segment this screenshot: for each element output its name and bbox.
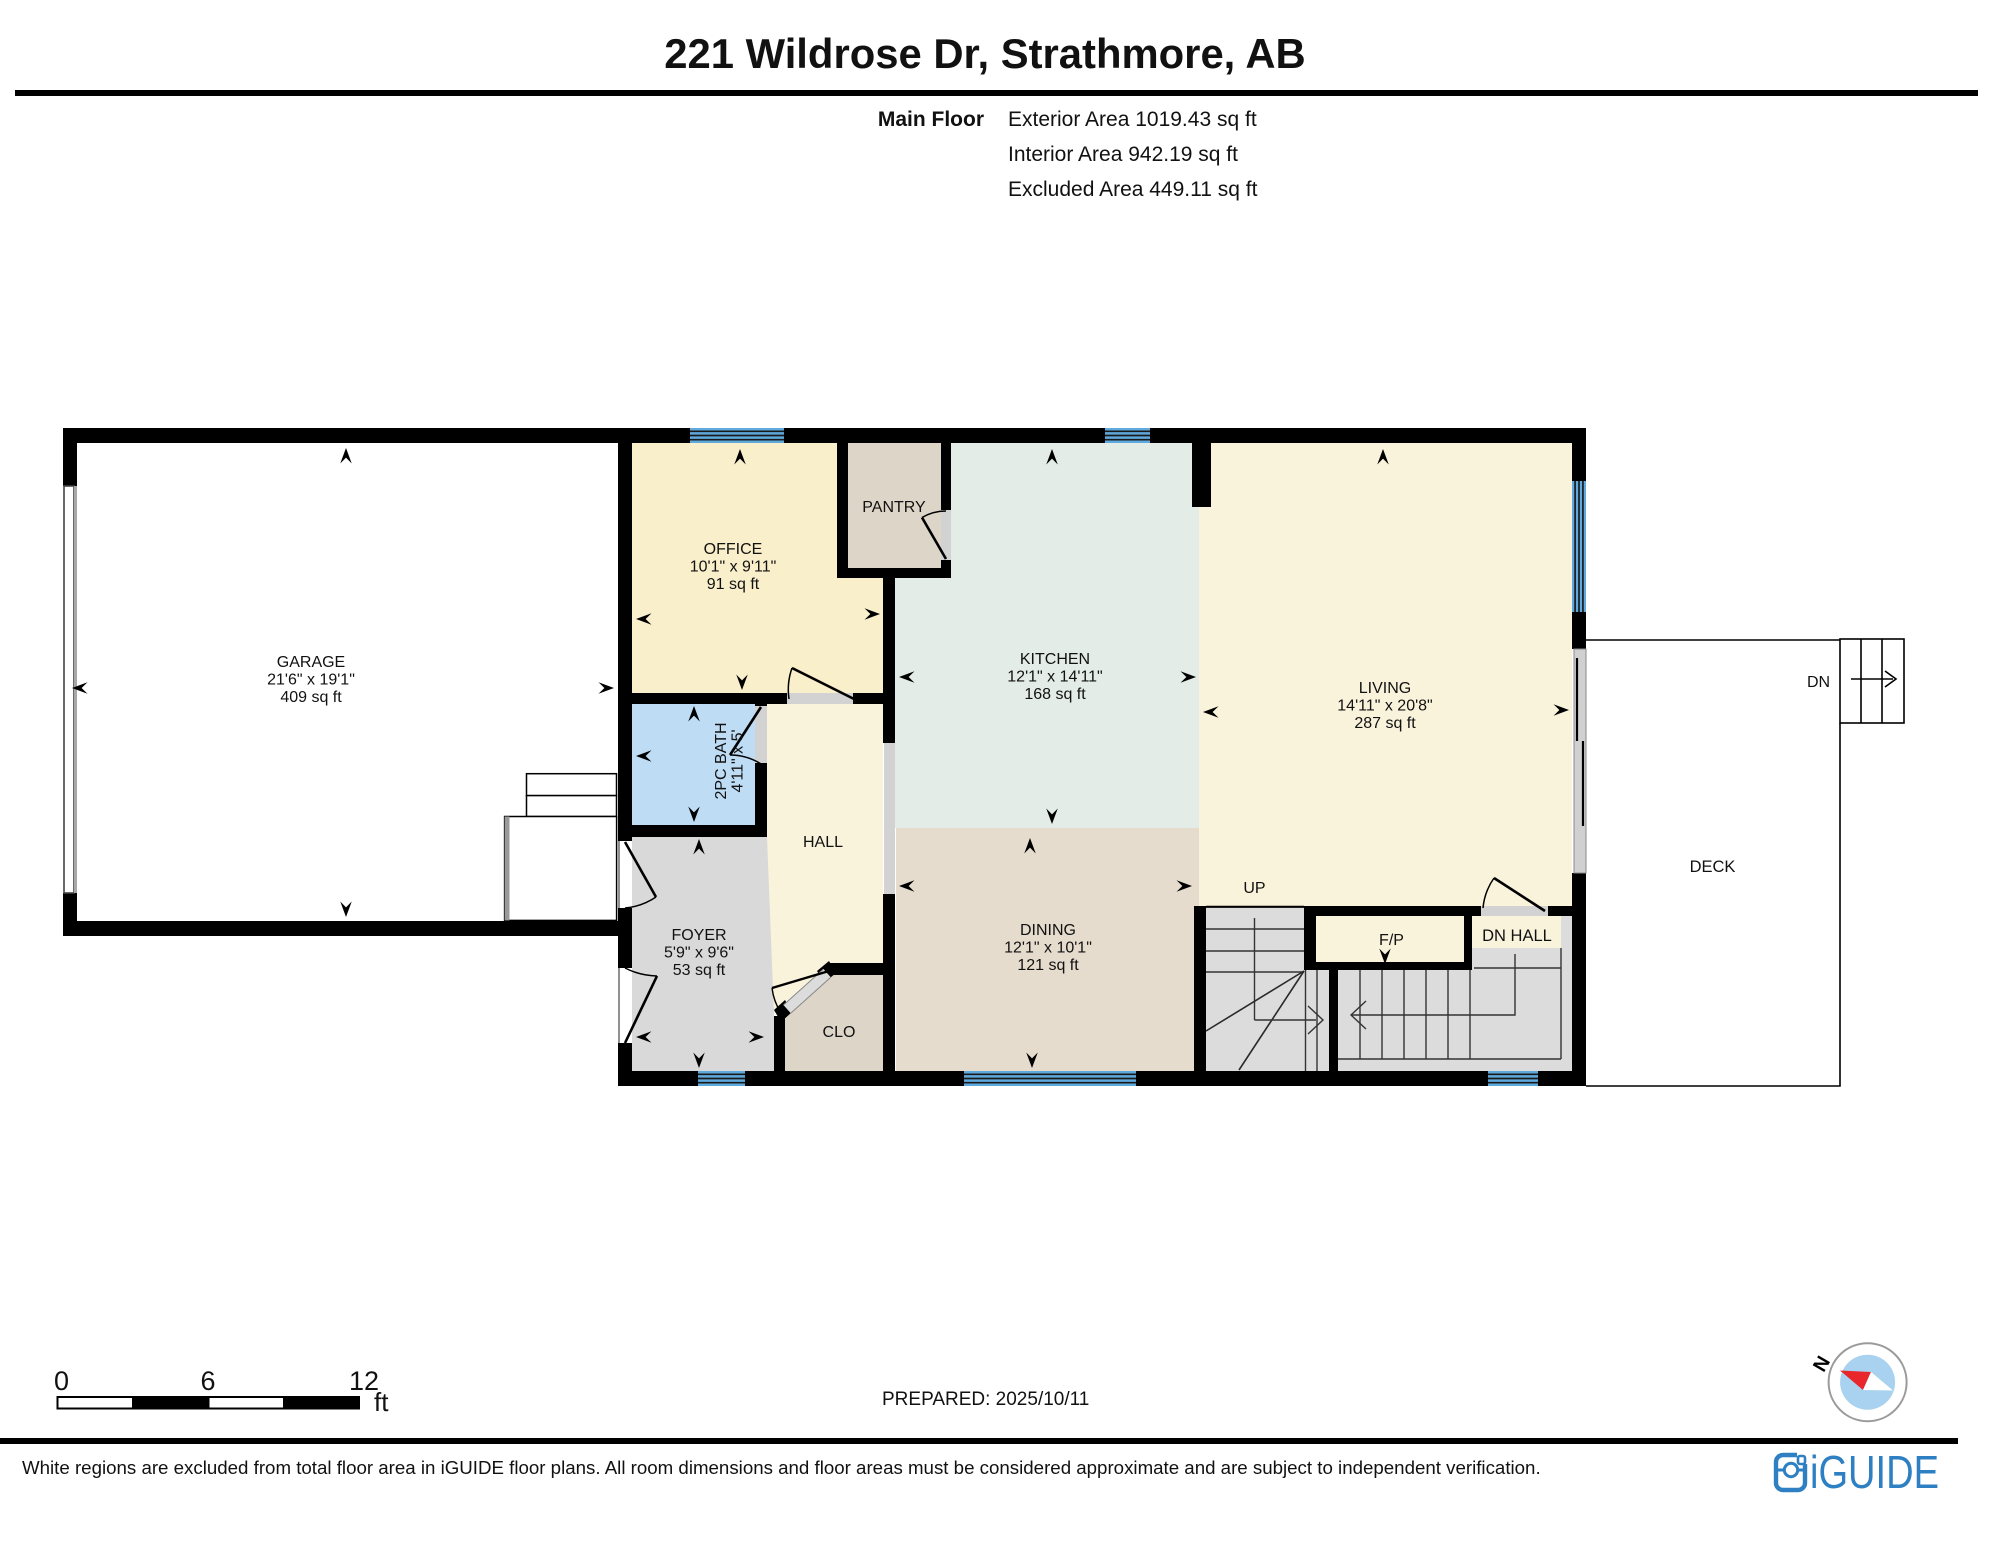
svg-text:KITCHEN: KITCHEN <box>1020 651 1090 668</box>
svg-text:Main Floor: Main Floor <box>878 108 984 131</box>
svg-text:4'11" x 5': 4'11" x 5' <box>730 729 747 792</box>
svg-text:PANTRY: PANTRY <box>862 499 926 516</box>
svg-text:ft: ft <box>374 1387 389 1417</box>
svg-text:HALL: HALL <box>803 834 843 851</box>
svg-text:0: 0 <box>54 1366 69 1396</box>
svg-text:LIVING: LIVING <box>1359 680 1411 697</box>
svg-text:12'1" x 10'1": 12'1" x 10'1" <box>1004 940 1092 957</box>
svg-text:12'1" x 14'11": 12'1" x 14'11" <box>1007 669 1102 686</box>
svg-text:91 sq ft: 91 sq ft <box>707 576 760 593</box>
svg-text:409 sq ft: 409 sq ft <box>280 689 342 706</box>
svg-text:CLO: CLO <box>823 1024 856 1041</box>
svg-text:287 sq ft: 287 sq ft <box>1354 715 1416 732</box>
svg-text:21'6" x 19'1": 21'6" x 19'1" <box>267 672 355 689</box>
svg-text:14'11" x 20'8": 14'11" x 20'8" <box>1337 698 1432 715</box>
svg-text:DINING: DINING <box>1020 922 1076 939</box>
svg-text:53 sq ft: 53 sq ft <box>673 962 726 979</box>
svg-text:DECK: DECK <box>1690 858 1736 876</box>
svg-text:10'1" x 9'11": 10'1" x 9'11" <box>690 559 777 576</box>
svg-text:121 sq ft: 121 sq ft <box>1017 957 1079 974</box>
svg-text:FOYER: FOYER <box>671 927 726 944</box>
svg-text:2PC BATH: 2PC BATH <box>713 722 730 799</box>
svg-text:F/P: F/P <box>1379 932 1404 949</box>
svg-text:6: 6 <box>200 1366 215 1396</box>
svg-text:DN: DN <box>1807 674 1830 691</box>
svg-text:PREPARED: 2025/10/11: PREPARED: 2025/10/11 <box>882 1389 1089 1410</box>
svg-text:OFFICE: OFFICE <box>704 541 763 558</box>
svg-text:GARAGE: GARAGE <box>277 654 345 671</box>
svg-text:5'9" x 9'6": 5'9" x 9'6" <box>664 945 734 962</box>
svg-text:221 Wildrose Dr, Strathmore, A: 221 Wildrose Dr, Strathmore, AB <box>664 30 1305 77</box>
svg-text:Exterior Area 1019.43 sq ft: Exterior Area 1019.43 sq ft <box>1008 108 1257 131</box>
svg-text:UP: UP <box>1243 880 1265 897</box>
svg-text:DN HALL: DN HALL <box>1482 927 1552 945</box>
svg-text:iGUIDE: iGUIDE <box>1810 1446 1939 1498</box>
svg-text:White regions are excluded fro: White regions are excluded from total fl… <box>22 1457 1541 1478</box>
svg-text:Interior Area 942.19 sq ft: Interior Area 942.19 sq ft <box>1008 143 1238 166</box>
svg-text:Excluded Area 449.11 sq ft: Excluded Area 449.11 sq ft <box>1008 178 1258 201</box>
svg-text:168 sq ft: 168 sq ft <box>1024 686 1086 703</box>
